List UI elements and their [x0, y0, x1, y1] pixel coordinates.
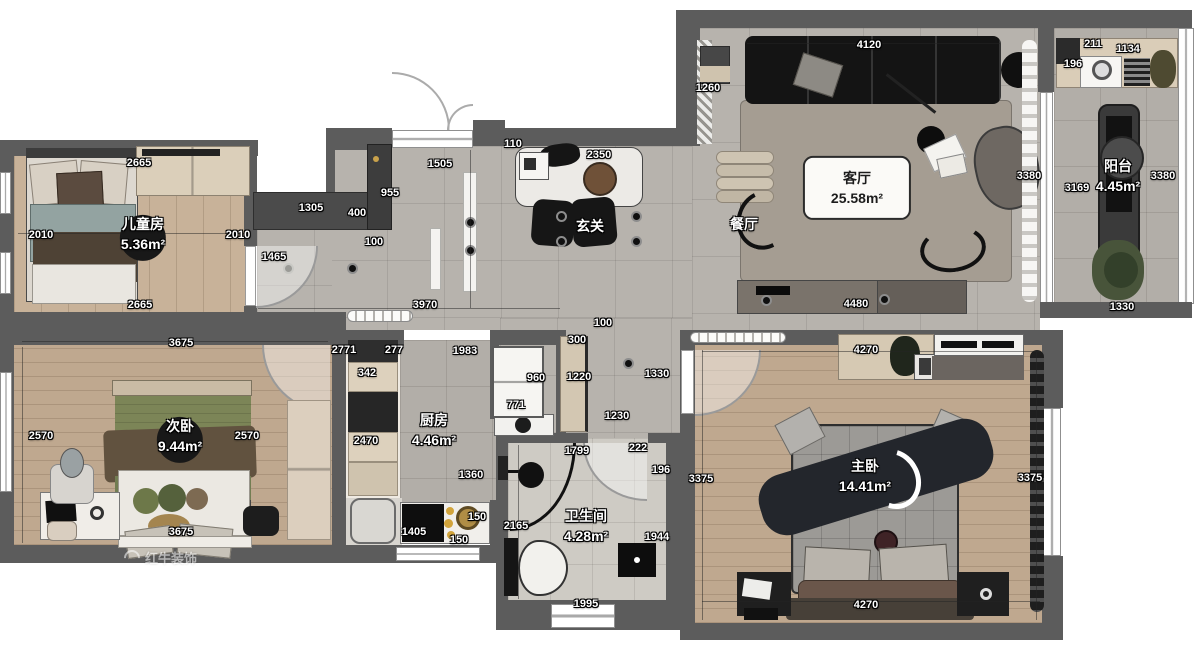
dimension-label: 1220	[567, 371, 591, 383]
dimension-label: 196	[1064, 58, 1082, 70]
dimension-label: 771	[507, 399, 525, 411]
ceiling-spotlight	[631, 236, 642, 247]
dimension-label: 4480	[844, 298, 868, 310]
ceiling-spotlight	[556, 211, 567, 222]
dining-chair	[530, 199, 575, 248]
dimension-label: 342	[358, 367, 376, 379]
window	[0, 252, 11, 294]
pillow-brown	[56, 171, 104, 207]
nightstand-decor	[742, 578, 772, 600]
dimension-label: 3970	[413, 299, 437, 311]
burner-flame	[444, 519, 453, 528]
watermark-text: 红牛装饰	[145, 548, 197, 567]
ceiling-spotlight	[347, 263, 358, 274]
room-label-second-bedroom: 次卧9.44m²	[158, 418, 202, 454]
decor-plate	[583, 162, 617, 196]
dimension-label: 3675	[169, 337, 193, 349]
balcony-divider-window	[1040, 92, 1053, 304]
wardrobe-rail	[142, 149, 220, 156]
dimension-line	[702, 350, 703, 620]
soundbar	[941, 341, 977, 348]
dimension-label: 960	[527, 372, 545, 384]
hanger-rail-trim	[690, 332, 786, 343]
pillow-green	[133, 488, 159, 514]
dimension-line	[470, 150, 471, 308]
dimension-label: 3675	[169, 526, 193, 538]
room-label-master-bedroom: 主卧14.41m²	[839, 458, 891, 494]
master-window	[1043, 408, 1061, 556]
dimension-label: 3375	[1018, 472, 1042, 484]
wall	[505, 128, 676, 146]
bench-item	[744, 608, 778, 620]
dimension-label: 2165	[504, 520, 528, 532]
decor-frame	[524, 158, 536, 170]
window	[0, 372, 12, 492]
dimension-label: 2771	[332, 344, 356, 356]
dimension-label: 1505	[428, 158, 452, 170]
dimension-label: 100	[594, 317, 612, 329]
washer-drum	[1092, 60, 1112, 80]
dimension-label: 2570	[235, 430, 259, 442]
room-label-kitchen: 厨房4.46m²	[412, 412, 456, 448]
speaker	[879, 294, 890, 305]
dimension-label: 3380	[1017, 170, 1041, 182]
teddy-bear	[186, 488, 208, 510]
dimension-label: 222	[629, 442, 647, 454]
dimension-label: 955	[381, 187, 399, 199]
pet-bed	[243, 506, 279, 536]
dimension-label: 300	[568, 334, 586, 346]
room-label-children-room: 儿童房5.36m²	[121, 216, 165, 252]
kitchen-window	[396, 547, 480, 561]
dimension-label: 2570	[29, 430, 53, 442]
dimension-label: 1305	[299, 202, 323, 214]
built-in-oven	[348, 392, 398, 432]
dimension-label: 4270	[854, 344, 878, 356]
plant	[1150, 50, 1176, 88]
wall	[0, 156, 14, 562]
dimension-label: 1134	[1116, 43, 1140, 55]
dimension-label: 1330	[645, 368, 669, 380]
kitchen-cabinet	[348, 462, 398, 496]
ceiling-spotlight	[623, 358, 634, 369]
floor-drain	[283, 263, 294, 274]
children-bed-foot	[32, 264, 136, 304]
wall	[473, 120, 505, 146]
dimension-label: 211	[1084, 38, 1102, 50]
dimension-label: 2665	[127, 157, 151, 169]
hall-cabinet	[560, 336, 588, 432]
dimension-label: 1995	[574, 598, 598, 610]
soundbar	[982, 341, 1014, 348]
room-label-bathroom: 卫生间4.28m²	[564, 508, 608, 544]
partition-screen	[430, 228, 441, 290]
dimension-label: 1405	[402, 526, 426, 538]
cabinet-knob	[373, 156, 379, 162]
ottoman-bench	[716, 177, 774, 190]
shower-valve	[498, 456, 508, 480]
vanity-sink	[515, 417, 531, 433]
dimension-label: 1465	[262, 251, 286, 263]
dimension-label: 4120	[857, 39, 881, 51]
toilet-tank	[504, 538, 518, 596]
window	[0, 172, 11, 214]
dimension-label: 3169	[1065, 182, 1089, 194]
dimension-label: 150	[450, 534, 468, 546]
balcony-window	[1178, 28, 1194, 304]
dimension-line	[258, 308, 560, 309]
record-player	[761, 295, 772, 306]
entry-door-swing	[392, 72, 450, 130]
watermark: 红牛装饰	[124, 548, 197, 567]
wall	[1042, 556, 1063, 640]
children-door-opening	[245, 246, 256, 306]
dimension-label: 2010	[29, 229, 53, 241]
dimension-label: 150	[468, 511, 486, 523]
room-label-living-room: 客厅25.58m²	[803, 156, 911, 220]
second-bed-headboard	[112, 380, 252, 396]
wall	[666, 433, 680, 608]
pillow-green	[158, 484, 186, 512]
dimension-label: 1799	[565, 445, 589, 457]
niche-shelf	[700, 66, 730, 82]
washer-dryer	[350, 498, 396, 544]
room-label-balcony: 阳台4.45m²	[1096, 158, 1140, 194]
wall	[490, 330, 566, 345]
burner-flame	[446, 507, 454, 515]
wall	[680, 623, 1063, 640]
wall	[1042, 330, 1063, 408]
dimension-label: 277	[385, 344, 403, 356]
dimension-label: 2350	[587, 149, 611, 161]
vase	[60, 448, 84, 478]
room-label-foyer: 玄关	[576, 218, 604, 234]
wall	[1038, 28, 1054, 92]
floor-plan: 红牛装饰 26652010201014652665397013054009551…	[0, 0, 1200, 656]
bull-logo-icon	[121, 546, 144, 569]
entry-door-sill	[392, 130, 473, 148]
dimension-line	[1036, 352, 1037, 620]
plant-large-inner	[1104, 252, 1138, 288]
ottoman-bench	[716, 151, 774, 164]
dimension-label: 2470	[354, 435, 378, 447]
dimension-label: 3380	[1151, 170, 1175, 182]
master-door-opening	[681, 350, 694, 414]
entry-door-swing-small	[447, 104, 473, 130]
nightstand-lamp	[980, 588, 992, 600]
ceiling-spotlight	[631, 211, 642, 222]
dimension-label: 1983	[453, 345, 477, 357]
rain-shower-head	[518, 462, 544, 488]
dimension-label: 196	[652, 464, 670, 476]
dimension-label: 110	[504, 138, 522, 150]
children-headboard	[26, 148, 138, 158]
dimension-label: 1944	[645, 531, 669, 543]
tv-console-right	[877, 280, 967, 314]
ottoman-bench	[716, 164, 774, 177]
stool	[47, 521, 77, 541]
dimension-label: 3375	[689, 473, 713, 485]
dimension-label: 1330	[1110, 301, 1134, 313]
bench-scallop-trim	[347, 310, 413, 322]
drain-dot	[634, 557, 640, 563]
media-cabinet	[932, 356, 1024, 380]
tv-screen	[756, 286, 790, 295]
room-label-dining-room: 餐厅	[730, 216, 758, 232]
dimension-label: 1360	[459, 469, 483, 481]
dimension-line	[22, 347, 23, 543]
dimension-label: 2665	[128, 299, 152, 311]
dimension-label: 4270	[854, 599, 878, 611]
magnifier-ring	[90, 506, 104, 520]
dimension-label: 400	[348, 207, 366, 219]
dimension-label: 2010	[226, 229, 250, 241]
drying-rack	[1124, 58, 1150, 86]
dimension-label: 1260	[696, 82, 720, 94]
ceiling-spotlight	[556, 236, 567, 247]
wall	[676, 10, 1192, 28]
frame-photo	[919, 358, 931, 375]
wall	[332, 345, 346, 545]
wardrobe-panels	[287, 400, 331, 540]
dimension-label: 1230	[605, 410, 629, 422]
dimension-label: 100	[365, 236, 383, 248]
